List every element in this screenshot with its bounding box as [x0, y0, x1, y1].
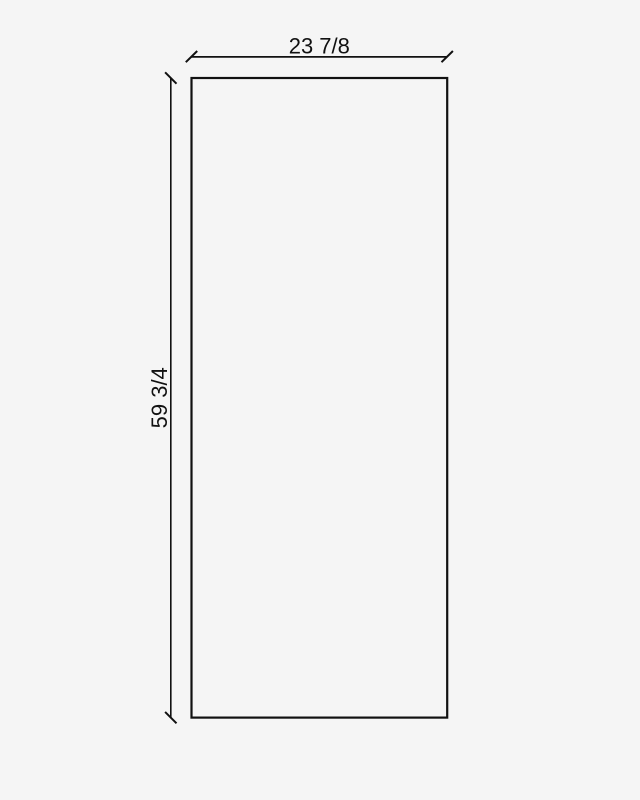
svg-text:23 7/8: 23 7/8 — [289, 34, 350, 59]
svg-text:59 3/4: 59 3/4 — [147, 367, 172, 428]
